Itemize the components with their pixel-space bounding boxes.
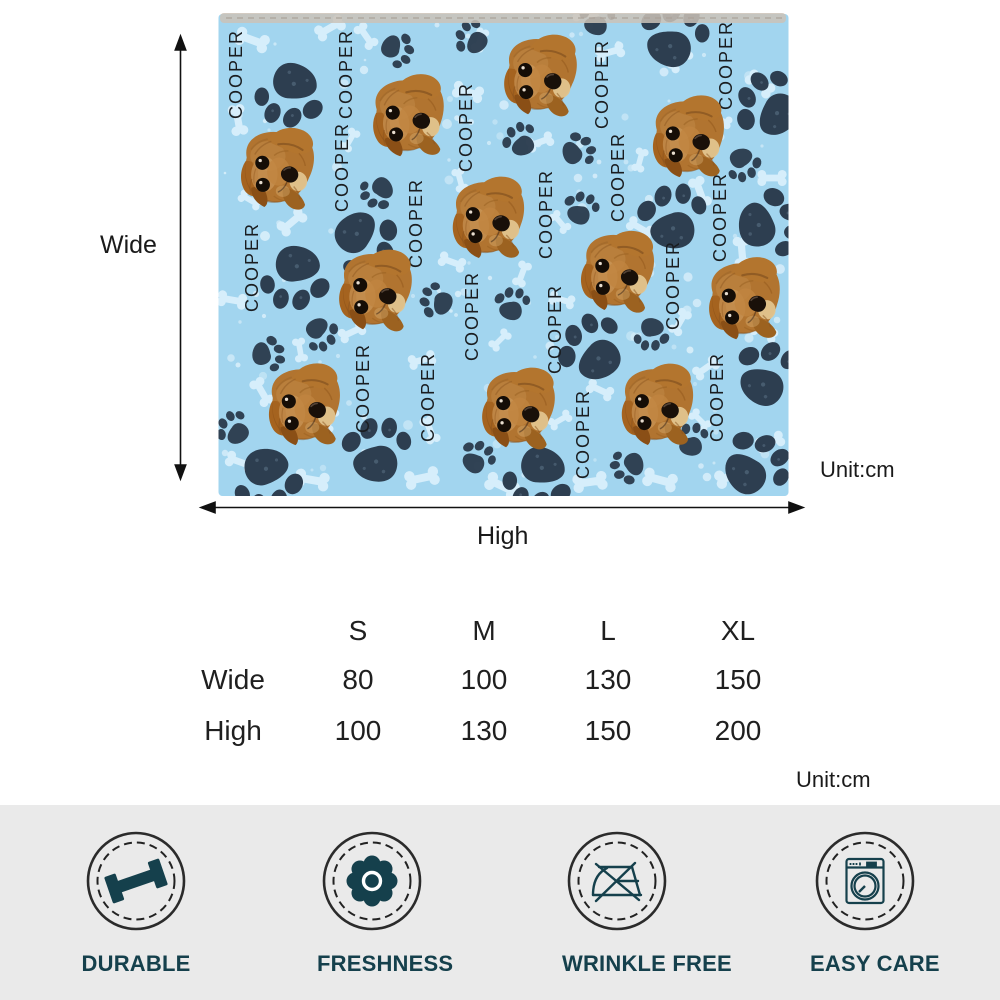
svg-text:COOPER: COOPER [716, 20, 736, 110]
svg-text:COOPER: COOPER [456, 82, 476, 172]
svg-text:COOPER: COOPER [336, 29, 356, 119]
svg-text:COOPER: COOPER [663, 240, 683, 330]
svg-text:COOPER: COOPER [592, 39, 612, 129]
svg-text:COOPER: COOPER [573, 389, 593, 479]
svg-text:COOPER: COOPER [406, 178, 426, 268]
svg-text:COOPER: COOPER [710, 172, 730, 262]
svg-text:COOPER: COOPER [332, 122, 352, 212]
svg-text:COOPER: COOPER [462, 271, 482, 361]
svg-text:COOPER: COOPER [608, 132, 628, 222]
svg-text:COOPER: COOPER [353, 343, 373, 433]
svg-text:COOPER: COOPER [226, 29, 246, 119]
svg-text:COOPER: COOPER [418, 352, 438, 442]
svg-text:COOPER: COOPER [545, 284, 565, 374]
svg-text:COOPER: COOPER [707, 352, 727, 442]
svg-text:COOPER: COOPER [536, 169, 556, 259]
svg-text:COOPER: COOPER [242, 222, 262, 312]
